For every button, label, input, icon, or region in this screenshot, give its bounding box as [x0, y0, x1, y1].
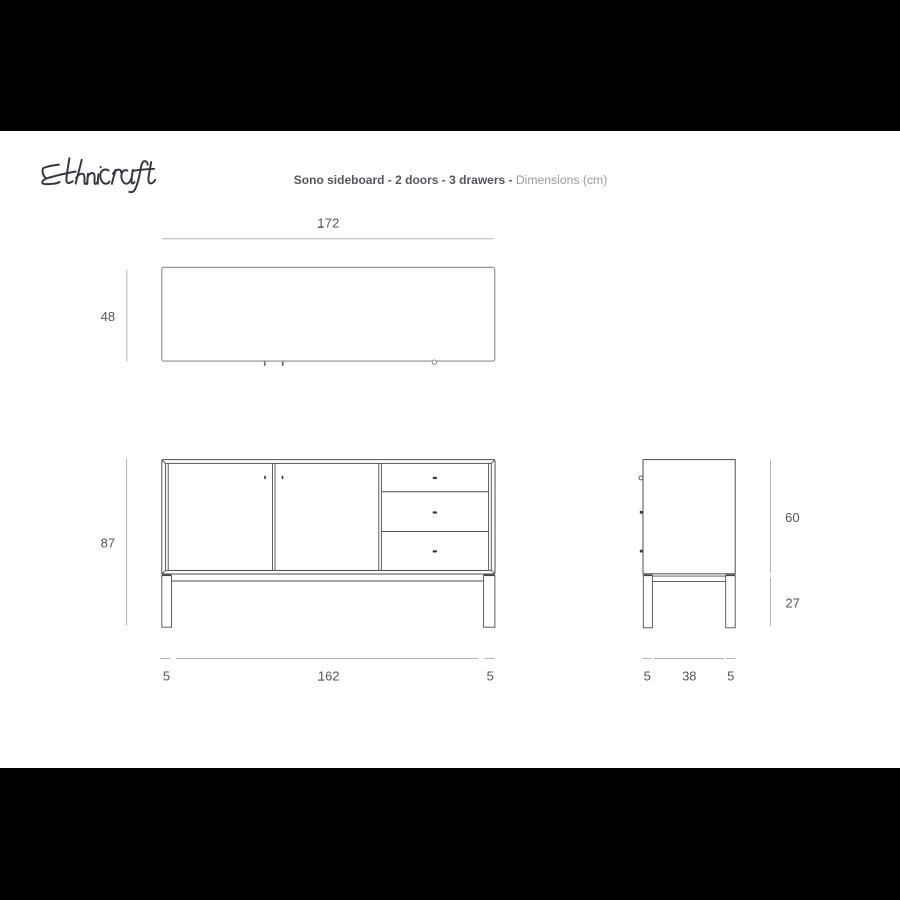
- svg-text:162: 162: [318, 668, 340, 683]
- svg-text:172: 172: [317, 216, 339, 231]
- svg-text:5: 5: [163, 668, 170, 683]
- svg-text:5: 5: [487, 668, 494, 683]
- svg-text:48: 48: [101, 309, 115, 324]
- svg-text:5: 5: [727, 668, 734, 683]
- svg-text:27: 27: [785, 596, 799, 611]
- svg-text:38: 38: [682, 668, 696, 683]
- svg-text:Sono sideboard - 2 doors - 3 d: Sono sideboard - 2 doors - 3 drawers - D…: [294, 173, 607, 187]
- svg-text:5: 5: [644, 668, 651, 683]
- svg-text:60: 60: [785, 510, 799, 525]
- svg-text:87: 87: [101, 536, 115, 551]
